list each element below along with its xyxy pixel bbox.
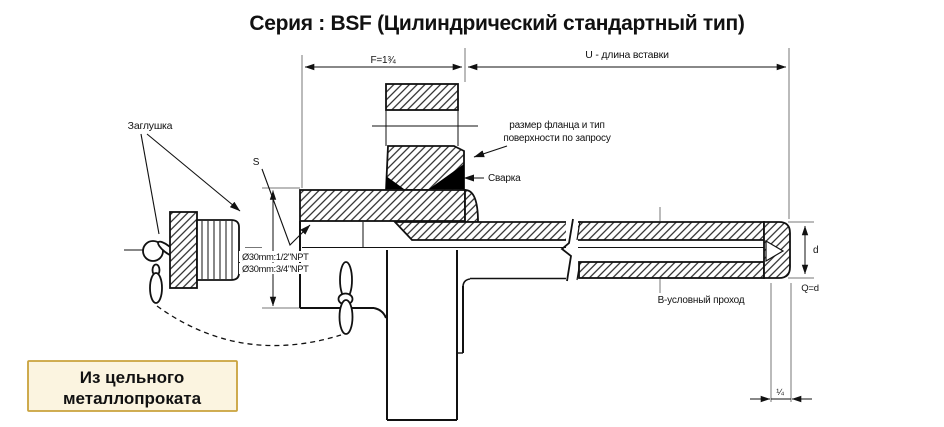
plug-thread-body (197, 220, 239, 280)
thermowell-drawing: Серия : BSF (Цилиндрический стандартный … (0, 0, 944, 427)
flange-note-line2: поверхности по запросу (503, 133, 610, 144)
shoulder-fillet (465, 190, 478, 222)
callout-line2: металлопроката (63, 389, 202, 408)
dim-q-label: Q=d (801, 283, 819, 294)
technical-drawing-page: Серия : BSF (Цилиндрический стандартный … (0, 0, 944, 427)
callout-line1: Из цельного (80, 368, 184, 387)
flange-note-line1: размер фланца и тип (509, 119, 605, 131)
sectioned-body (300, 84, 790, 278)
neck-upper-section (386, 84, 458, 110)
material-callout-box: Из цельного металлопроката (28, 361, 237, 411)
plug-head-section (170, 212, 197, 288)
weld-label: Сварка (488, 173, 521, 184)
hex-body-section (300, 190, 465, 221)
dim-quarter-label: ¼ (776, 387, 784, 397)
drawing-title: Серия : BSF (Цилиндрический стандартный … (249, 12, 744, 35)
plug-label: Заглушка (128, 120, 173, 132)
bore-label: B-условный проход (658, 295, 745, 306)
dim-u-label: U - длина вставки (585, 49, 669, 61)
dim-s-label: S (253, 157, 260, 168)
stem-bottom-wall (579, 262, 764, 278)
dim-f-label: F=1¾ (370, 55, 396, 66)
plug-chain-link (150, 273, 162, 303)
npt-small-label: Ø30mm:1/2"NPT (242, 252, 309, 262)
dim-d-label: d (813, 245, 818, 256)
plug-assembly (124, 212, 239, 303)
npt-large-label: Ø30mm:3/4"NPT (242, 264, 309, 274)
chain-dashed-path (157, 306, 341, 346)
